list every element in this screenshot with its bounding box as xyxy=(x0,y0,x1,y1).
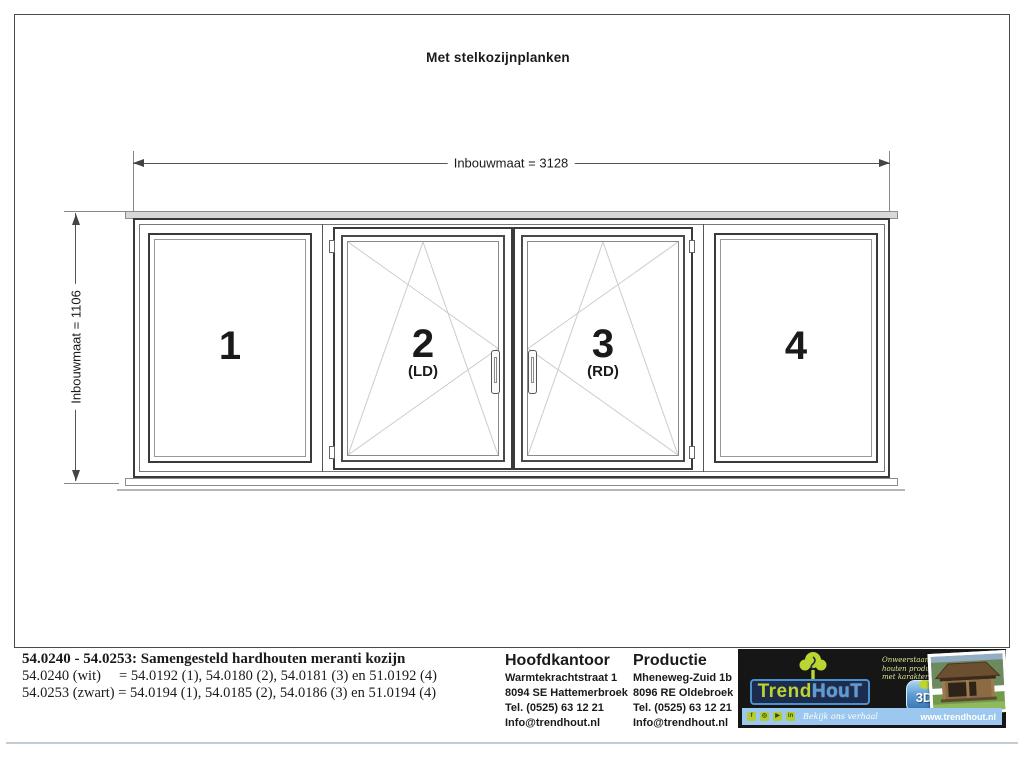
tree-icon xyxy=(796,651,830,681)
dimension-arrow-up-icon xyxy=(72,214,80,225)
spec-block: 54.0240 - 54.0253: Samengesteld hardhout… xyxy=(22,651,437,702)
window-3-handle xyxy=(528,350,537,394)
gazebo-illustration xyxy=(931,653,1006,713)
productie-phone: Tel. (0525) 63 12 21 xyxy=(633,701,733,715)
social-icon-facebook: f xyxy=(747,712,756,721)
brand-hout: HouT xyxy=(812,681,863,703)
dimension-arrow-down-icon xyxy=(72,470,80,481)
sill-line xyxy=(117,489,905,491)
trendhout-logo: TrendHouT xyxy=(750,679,870,705)
brand-trend: Trend xyxy=(758,681,812,703)
window-1-number: 1 xyxy=(219,327,241,365)
website-url: www.trendhout.nl xyxy=(920,712,996,722)
extension-line-top xyxy=(64,211,127,212)
drawing-sheet: Met stelkozijnplanken Inbouwmaat = 3128 … xyxy=(0,0,1024,768)
page-title: Met stelkozijnplanken xyxy=(398,50,598,65)
social-text: Bekijk ons verhaal xyxy=(803,712,878,721)
window-2-handle-detail xyxy=(494,357,497,383)
frame-bottom-band xyxy=(125,478,898,486)
dimension-arrow-left-icon xyxy=(133,159,144,167)
dimension-height-label: Inbouwmaat = 1106 xyxy=(68,284,85,410)
productie-city: 8096 RE Oldebroek xyxy=(633,686,733,700)
productie-header: Productie xyxy=(633,651,733,670)
mullion-3-4 xyxy=(703,224,704,472)
spec-line-zwart: 54.0253 (zwart) = 54.0194 (1), 54.0185 (… xyxy=(22,685,437,702)
hoofdkantoor-phone: Tel. (0525) 63 12 21 xyxy=(505,701,628,715)
hoofdkantoor-street: Warmtekrachtstraat 1 xyxy=(505,671,628,685)
social-icon-instagram: ◎ xyxy=(760,712,769,721)
social-icon-youtube: ▶ xyxy=(773,712,782,721)
logo-bottom-bar: f ◎ ▶ in Bekijk ons verhaal www.trendhou… xyxy=(742,708,1002,725)
window-1-label: 1 xyxy=(219,327,241,365)
extension-line-bottom xyxy=(64,483,119,484)
info-bar: 54.0240 - 54.0253: Samengesteld hardhout… xyxy=(14,647,1010,730)
dimension-width-label: Inbouwmaat = 3128 xyxy=(448,156,575,171)
window-3-hinge-bottom xyxy=(689,446,695,459)
mullion-1-2 xyxy=(322,224,323,472)
window-2-number: 2 xyxy=(408,325,438,363)
window-2-hinge-bottom xyxy=(329,446,335,459)
window-2-label: 2 (LD) xyxy=(408,325,438,380)
page-edge-line xyxy=(6,742,1018,744)
hoofdkantoor-header: Hoofdkantoor xyxy=(505,651,628,670)
gazebo-photo xyxy=(927,650,1006,716)
productie-street: Mheneweg-Zuid 1b xyxy=(633,671,733,685)
window-4-label: 4 xyxy=(785,327,807,365)
window-3-handle-detail xyxy=(531,357,534,383)
productie-column: Productie Mheneweg-Zuid 1b 8096 RE Oldeb… xyxy=(633,651,733,730)
spec-line-wit: 54.0240 (wit) = 54.0192 (1), 54.0180 (2)… xyxy=(22,668,437,685)
window-4-number: 4 xyxy=(785,327,807,365)
window-3-hinge-top xyxy=(689,240,695,253)
productie-email: Info@trendhout.nl xyxy=(633,716,733,730)
window-3-direction: (RD) xyxy=(587,363,619,380)
window-2-direction: (LD) xyxy=(408,363,438,380)
trendhout-logo-box: TrendHouT Onweerstaanbare houten product… xyxy=(738,649,1006,728)
window-3-number: 3 xyxy=(587,325,619,363)
hoofdkantoor-email: Info@trendhout.nl xyxy=(505,716,628,730)
hoofdkantoor-city: 8094 SE Hattemerbroek xyxy=(505,686,628,700)
window-2-handle xyxy=(491,350,500,394)
window-2-hinge-top xyxy=(329,240,335,253)
hoofdkantoor-column: Hoofdkantoor Warmtekrachtstraat 1 8094 S… xyxy=(505,651,628,730)
window-3-label: 3 (RD) xyxy=(587,325,619,380)
dimension-arrow-right-icon xyxy=(879,159,890,167)
spec-title: 54.0240 - 54.0253: Samengesteld hardhout… xyxy=(22,651,437,668)
social-icon-linkedin: in xyxy=(786,712,795,721)
